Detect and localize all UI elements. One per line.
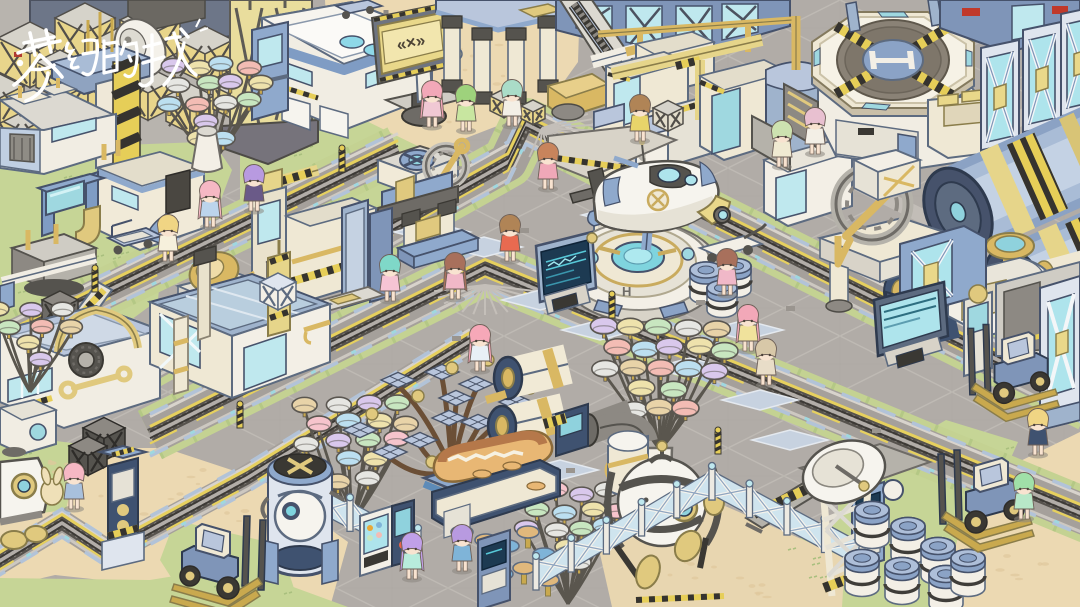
svg-text:H: H <box>622 284 631 299</box>
